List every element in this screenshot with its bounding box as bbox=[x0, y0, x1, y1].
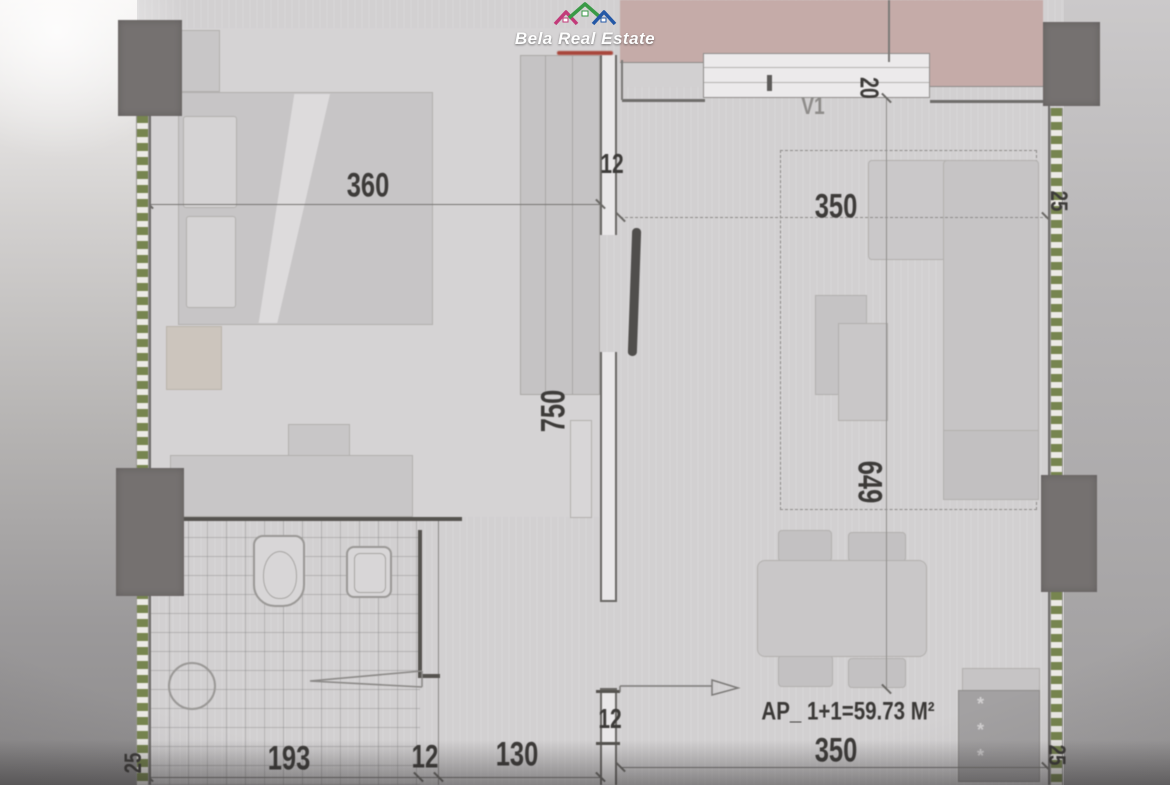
corridor-top-wall-stub bbox=[621, 60, 623, 100]
top-wall-left-of-window bbox=[622, 99, 705, 102]
door-jamb bbox=[600, 600, 617, 602]
closet-line bbox=[572, 56, 573, 394]
bathroom-top-wall bbox=[148, 517, 462, 521]
dim-line-649 bbox=[886, 98, 887, 690]
tv-unit bbox=[838, 323, 888, 421]
structural-column bbox=[118, 20, 182, 116]
pillow bbox=[186, 216, 236, 308]
toilet-bowl bbox=[263, 551, 297, 599]
brand-houses-icon bbox=[552, 2, 618, 28]
sliding-door-leaf bbox=[628, 228, 641, 356]
dim-wall-top: 12 bbox=[600, 148, 623, 180]
dim-living-length: 649 bbox=[850, 461, 889, 504]
dim-top-right-width: 350 bbox=[815, 188, 858, 227]
top-wall-right-of-window bbox=[930, 100, 1049, 103]
bathroom-right-wall bbox=[418, 530, 422, 678]
corridor-closet bbox=[520, 55, 600, 395]
right-wall-insulation bbox=[1050, 108, 1063, 475]
toilet bbox=[253, 535, 305, 607]
dim-wall-entrance: 12 bbox=[598, 703, 621, 735]
left-wall-face bbox=[149, 115, 151, 785]
window-inner-line bbox=[704, 67, 929, 68]
photo-bottom-shadow bbox=[0, 740, 1170, 785]
neighbor-unit-wall bbox=[888, 0, 890, 62]
structural-column bbox=[1041, 475, 1097, 592]
pillow bbox=[183, 116, 237, 208]
corridor-top-floor-patch bbox=[620, 62, 704, 87]
hall-cabinet bbox=[570, 420, 592, 518]
radiator-mark-icon: * bbox=[977, 691, 984, 717]
dining-chair bbox=[778, 530, 832, 562]
dining-chair bbox=[848, 658, 906, 688]
bathroom-door-arrow bbox=[300, 668, 425, 692]
shower-drain bbox=[168, 662, 216, 710]
sink bbox=[346, 546, 392, 598]
left-wall-insulation bbox=[136, 115, 149, 785]
brand-watermark: Bela Real Estate bbox=[505, 2, 665, 58]
window-inner-line bbox=[704, 82, 929, 83]
window-v1 bbox=[703, 53, 930, 98]
dim-window-depth: 20 bbox=[854, 77, 885, 99]
dining-table bbox=[757, 560, 927, 657]
closet-line bbox=[545, 56, 546, 394]
center-wall bbox=[600, 352, 617, 600]
nightstand bbox=[166, 326, 222, 390]
sofa-chaise bbox=[943, 430, 1039, 500]
window-mullion-mark bbox=[767, 75, 772, 91]
brand-url-smudge bbox=[557, 51, 613, 55]
apartment-area-label: AP_ 1+1=59.73 M² bbox=[761, 698, 934, 727]
dining-chair bbox=[778, 655, 833, 687]
nightstand bbox=[180, 30, 220, 92]
entrance-arrow bbox=[616, 676, 748, 702]
dim-bedroom-width: 360 bbox=[347, 167, 390, 206]
sink-basin bbox=[354, 553, 386, 593]
structural-column bbox=[116, 468, 184, 596]
dining-chair bbox=[848, 532, 906, 562]
wardrobe bbox=[288, 424, 350, 457]
structural-column bbox=[1043, 22, 1100, 106]
floorplan-drawing: * * * 360 12 350 bbox=[0, 0, 1170, 785]
floorplan-photo: * * * 360 12 350 bbox=[0, 0, 1170, 785]
wardrobe bbox=[170, 455, 413, 517]
window-type-label: V1 bbox=[801, 93, 824, 121]
dim-right-wall: 25 bbox=[1044, 191, 1072, 212]
dim-corridor-length: 750 bbox=[535, 390, 574, 433]
brand-name: Bela Real Estate bbox=[505, 29, 665, 49]
